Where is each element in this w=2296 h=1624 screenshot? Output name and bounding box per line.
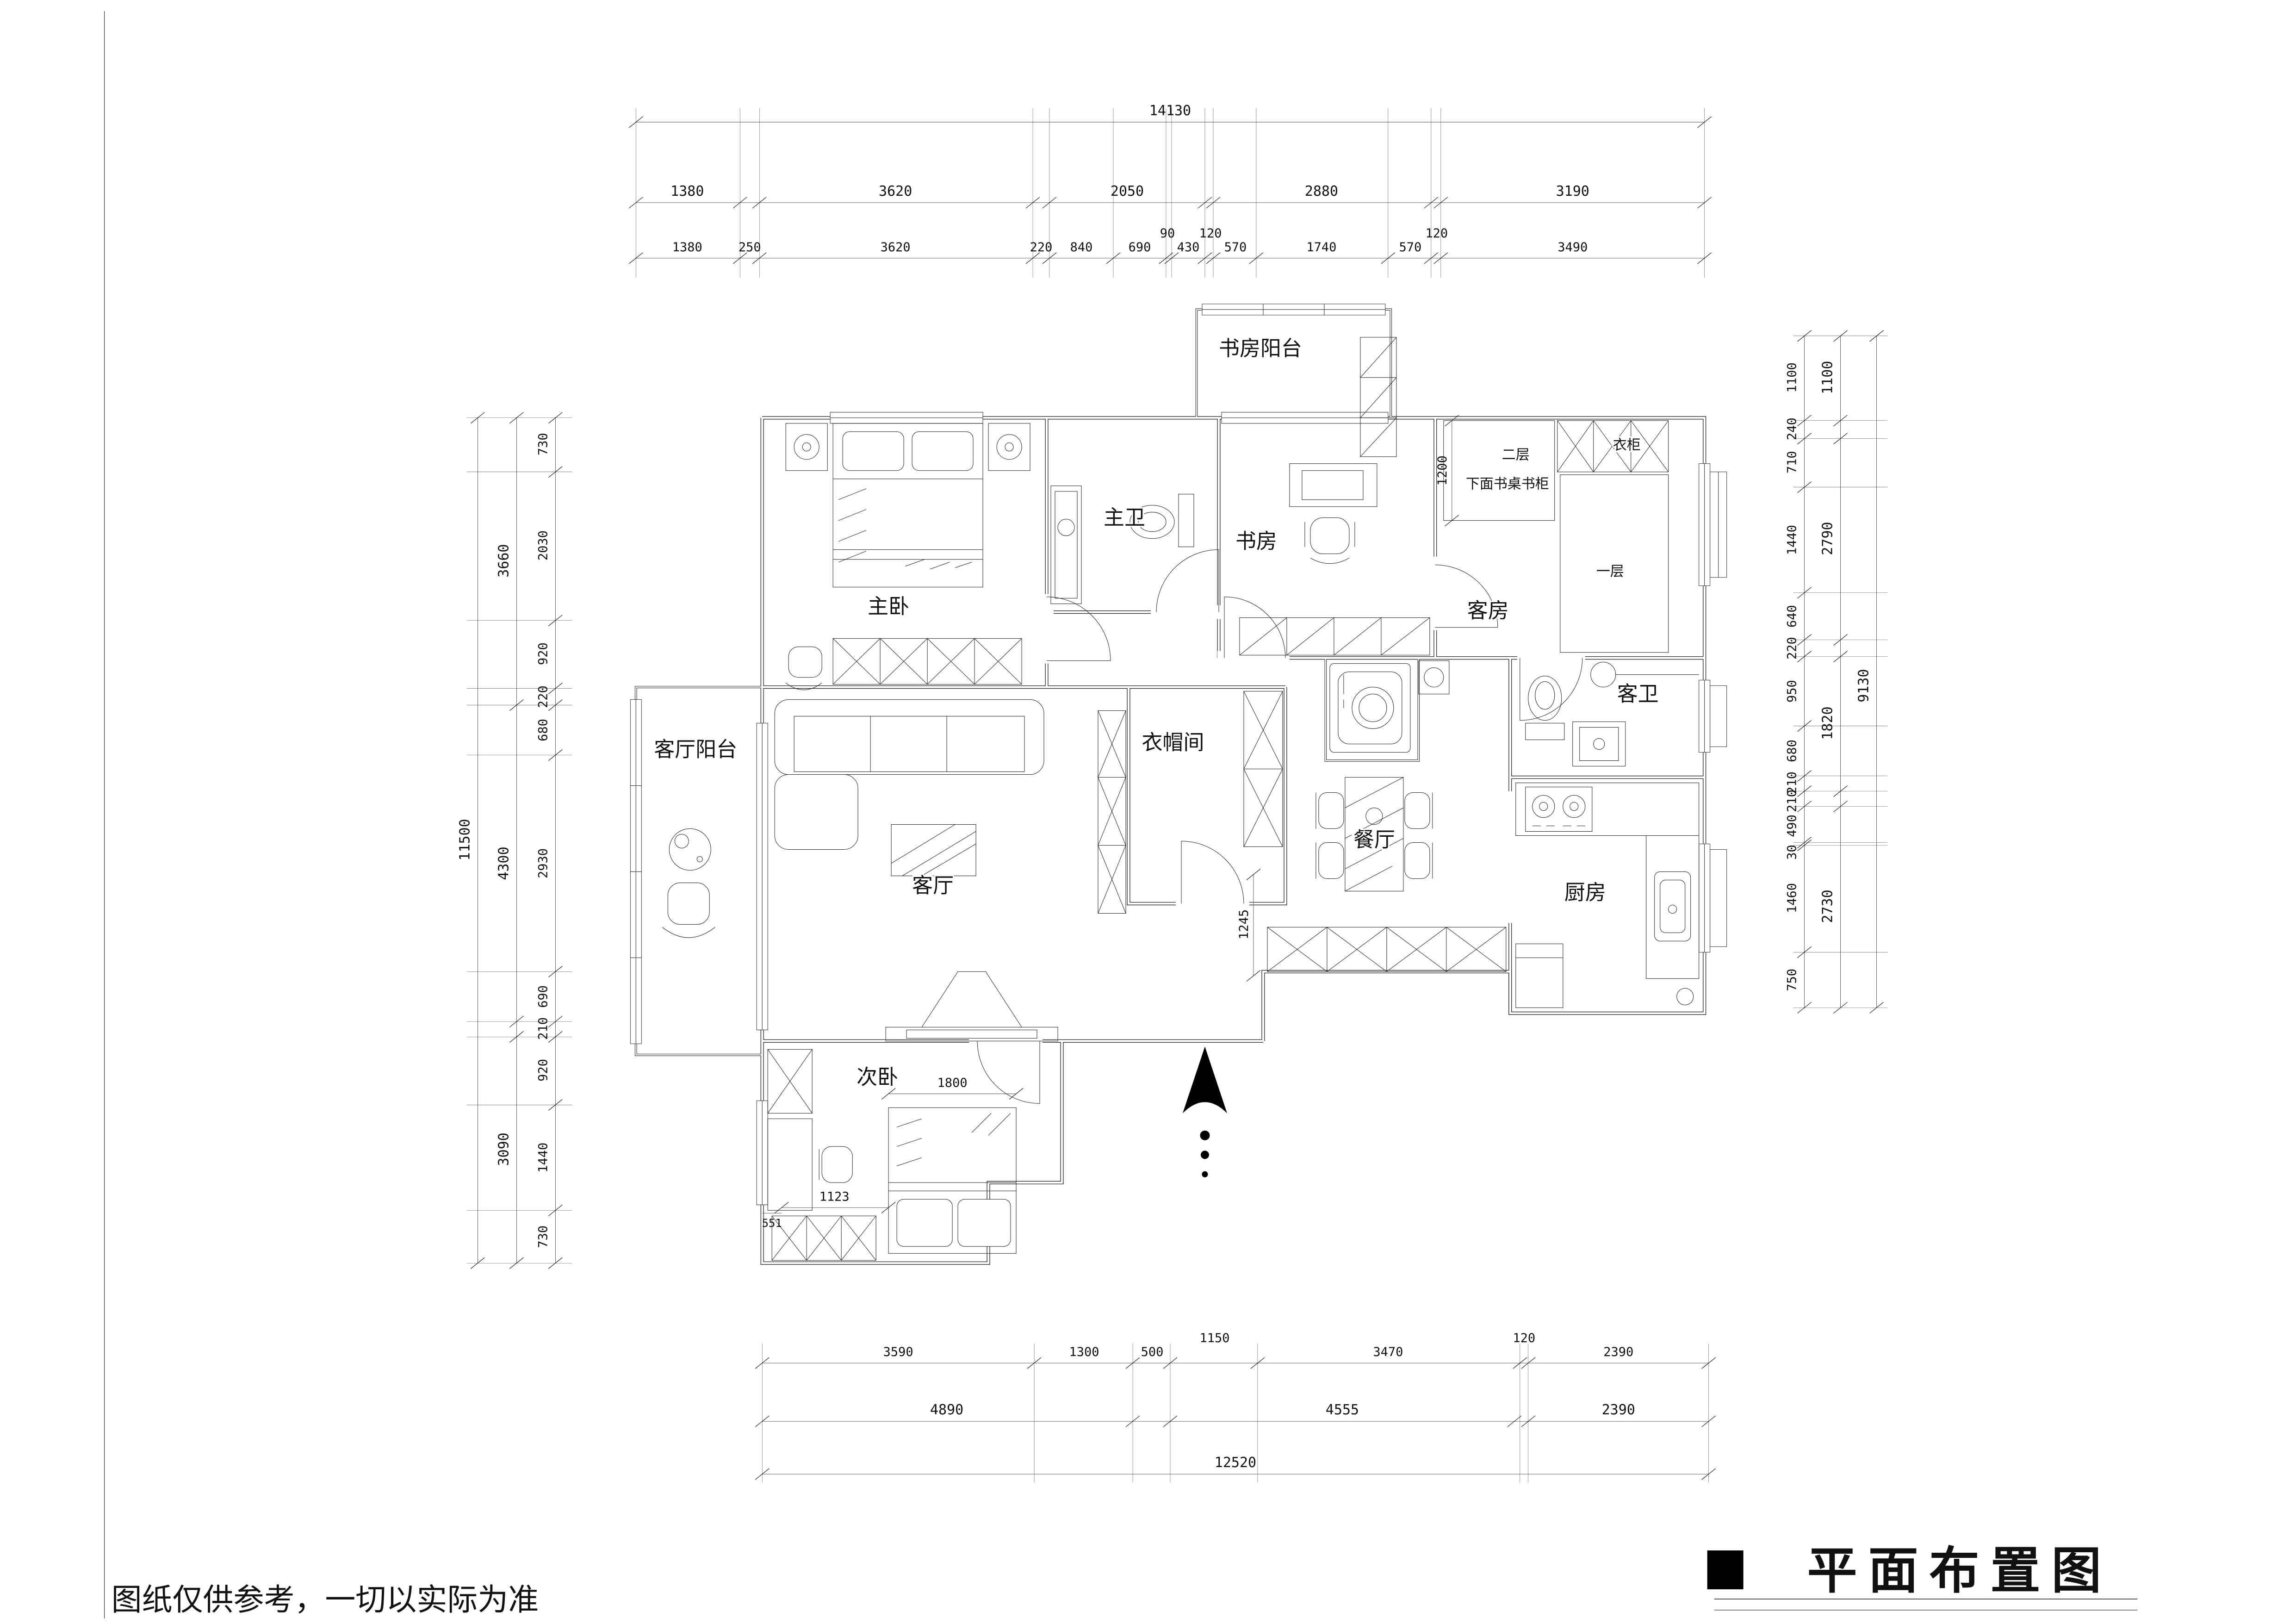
room-label-second-bedroom: 次卧 xyxy=(856,1064,898,1089)
dim-value: 250 xyxy=(738,240,761,255)
disclaimer-note: 图纸仅供参考，一切以实际为准 xyxy=(112,1582,539,1618)
room-label-cloakroom: 衣帽间 xyxy=(1142,730,1204,755)
room-label-kitchen: 厨房 xyxy=(1564,880,1606,904)
dim-value: 710 xyxy=(1785,451,1800,473)
room-label-guest-room: 客房 xyxy=(1467,598,1509,623)
dim-value: 3490 xyxy=(1558,240,1588,255)
dim-value: 570 xyxy=(1399,240,1421,255)
dim-value: 920 xyxy=(536,642,550,665)
dim-chain-right: 1100 240 710 1440 640 220 950 680 210 21… xyxy=(1785,330,1884,1014)
dim-value: 1245 xyxy=(1237,909,1251,940)
bed-lower-label: 一层 xyxy=(1596,564,1624,580)
drawing-sheet: 14130 1380 3620 2050 2880 3190 1380 250 … xyxy=(0,0,2296,1624)
master-bedroom-furniture xyxy=(786,423,1030,690)
dim-value: 2790 xyxy=(1820,522,1836,555)
walls xyxy=(636,310,1704,1263)
dim-value: 2930 xyxy=(536,848,550,878)
dim-value: 1150 xyxy=(1199,1331,1229,1345)
dim-value: 750 xyxy=(1785,969,1800,991)
door-master-bedroom xyxy=(1047,597,1111,661)
hall-cabinets xyxy=(1267,927,1506,971)
dim-value: 120 xyxy=(1513,1331,1535,1345)
dim-value: 14130 xyxy=(1149,103,1191,119)
dim-value: 840 xyxy=(1070,240,1093,255)
bunk-under-label: 下面书桌书柜 xyxy=(1466,476,1549,492)
dim-value: 220 xyxy=(536,685,550,708)
window-guest-bath xyxy=(1699,680,1727,753)
dim-value: 430 xyxy=(1177,240,1200,255)
window-second-bedroom xyxy=(757,1101,768,1205)
guest-bath-fixtures xyxy=(1526,662,1699,766)
dim-value: 1100 xyxy=(1785,362,1800,392)
dim-value: 2050 xyxy=(1111,183,1144,199)
dining-furniture: 1245 xyxy=(1237,778,1433,982)
dim-value: 490 xyxy=(1785,815,1800,837)
room-label-living-balcony: 客厅阳台 xyxy=(654,737,737,762)
door-cloakroom xyxy=(1181,841,1244,903)
door-study xyxy=(1224,597,1285,658)
dim-value: 3470 xyxy=(1373,1345,1403,1359)
dim-value: 1440 xyxy=(536,1143,550,1173)
dim-value: 3190 xyxy=(1556,183,1589,199)
window-kitchen xyxy=(1699,844,1727,952)
dim-value: 1200 xyxy=(1435,455,1450,485)
floor-plan-canvas: 14130 1380 3620 2050 2880 3190 1380 250 … xyxy=(0,0,2296,1624)
room-label-living-room: 客厅 xyxy=(912,873,954,897)
title-block-square xyxy=(1707,1550,1744,1589)
dim-value: 120 xyxy=(1199,226,1222,241)
dim-value: 4890 xyxy=(930,1402,963,1418)
window-study-balcony xyxy=(1202,304,1385,315)
dim-value: 9130 xyxy=(1856,669,1872,702)
living-room-furniture xyxy=(775,700,1126,1041)
room-label-master-bath: 主卫 xyxy=(1104,505,1145,530)
dim-value: 1820 xyxy=(1820,706,1836,740)
dim-chain-left: 730 2030 920 220 680 2930 690 210 920 14… xyxy=(457,412,562,1269)
dim-value: 90 xyxy=(1160,226,1175,241)
kitchen-fixtures xyxy=(1516,783,1699,1008)
dim-value: 220 xyxy=(1785,637,1800,660)
dim-value: 1380 xyxy=(670,183,704,199)
dim-value: 11500 xyxy=(457,819,473,860)
dim-value: 3590 xyxy=(883,1345,913,1359)
title-block: 平面布置图 xyxy=(1707,1542,2138,1610)
dim-value: 210 xyxy=(1785,790,1800,812)
wardrobe-label: 衣柜 xyxy=(1613,437,1641,454)
dim-value: 220 xyxy=(1030,240,1053,255)
dim-value: 2030 xyxy=(536,530,550,560)
window-master-bedroom xyxy=(830,412,983,423)
dim-value: 1440 xyxy=(1785,525,1800,555)
dim-value: 1800 xyxy=(937,1076,968,1090)
drawing-title: 平面布置图 xyxy=(1807,1542,2113,1600)
dim-value: 2880 xyxy=(1305,183,1338,199)
door-master-bath xyxy=(1156,550,1219,612)
door-guest-bath xyxy=(1520,658,1582,721)
dim-value: 690 xyxy=(1129,240,1151,255)
doors xyxy=(977,550,1582,1104)
dim-value: 4555 xyxy=(1326,1402,1359,1418)
dim-value: 210 xyxy=(536,1017,550,1040)
dim-value: 730 xyxy=(536,1226,550,1248)
dim-chain-bottom: 3590 1300 500 1150 3470 120 2390 4890 45… xyxy=(755,1331,1715,1480)
extension-lines xyxy=(466,108,1887,1482)
balcony-slider xyxy=(757,723,768,1030)
dim-value: 3620 xyxy=(881,240,911,255)
dim-value: 2390 xyxy=(1602,1402,1635,1418)
dim-value: 2390 xyxy=(1603,1345,1633,1359)
window-living-balcony xyxy=(630,700,641,1044)
dim-value: 4300 xyxy=(496,846,512,880)
dim-value: 680 xyxy=(1785,740,1800,762)
washing-machine xyxy=(1330,661,1449,753)
dim-value: 730 xyxy=(536,433,550,455)
dim-value: 570 xyxy=(1224,240,1247,255)
study-furniture xyxy=(1240,337,1430,655)
dim-value: 30 xyxy=(1785,845,1800,860)
dim-value: 1380 xyxy=(672,240,702,255)
room-label-study-balcony: 书房阳台 xyxy=(1219,336,1302,361)
dim-value: 1740 xyxy=(1306,240,1336,255)
living-balcony-items xyxy=(662,828,715,937)
dim-value: 1123 xyxy=(819,1189,850,1204)
dim-value: 640 xyxy=(1785,605,1800,628)
dim-value: 950 xyxy=(1785,680,1800,703)
cloakroom-furniture xyxy=(1244,691,1283,847)
dim-value: 3660 xyxy=(496,544,512,578)
room-label-master-bedroom: 主卧 xyxy=(868,594,909,619)
dim-value: 2730 xyxy=(1820,890,1836,923)
dim-chain-top: 14130 1380 3620 2050 2880 3190 1380 250 … xyxy=(629,103,1711,264)
dim-value: 680 xyxy=(536,719,550,741)
dim-value: 240 xyxy=(1785,417,1800,440)
dim-value: 1460 xyxy=(1785,883,1800,913)
dim-value: 920 xyxy=(536,1059,550,1082)
dim-value: 551 xyxy=(762,1217,782,1230)
dim-value: 1100 xyxy=(1820,361,1836,394)
dim-value: 690 xyxy=(536,985,550,1008)
dim-value: 120 xyxy=(1425,226,1448,241)
bunk-upper-label: 二层 xyxy=(1502,447,1530,463)
dim-value: 3090 xyxy=(496,1132,512,1166)
master-bath-fixtures xyxy=(1051,486,1194,604)
door-second-bedroom xyxy=(977,1041,1040,1103)
room-label-study: 书房 xyxy=(1235,529,1277,554)
dim-value: 500 xyxy=(1141,1345,1164,1359)
room-label-dining-room: 餐厅 xyxy=(1353,827,1395,852)
dim-value: 12520 xyxy=(1215,1455,1256,1471)
dim-value: 3620 xyxy=(879,183,912,199)
window-guest-room xyxy=(1699,464,1727,586)
room-label-guest-bath: 客卫 xyxy=(1617,682,1659,706)
dim-value: 1300 xyxy=(1069,1345,1099,1359)
north-arrow xyxy=(1183,1046,1227,1177)
